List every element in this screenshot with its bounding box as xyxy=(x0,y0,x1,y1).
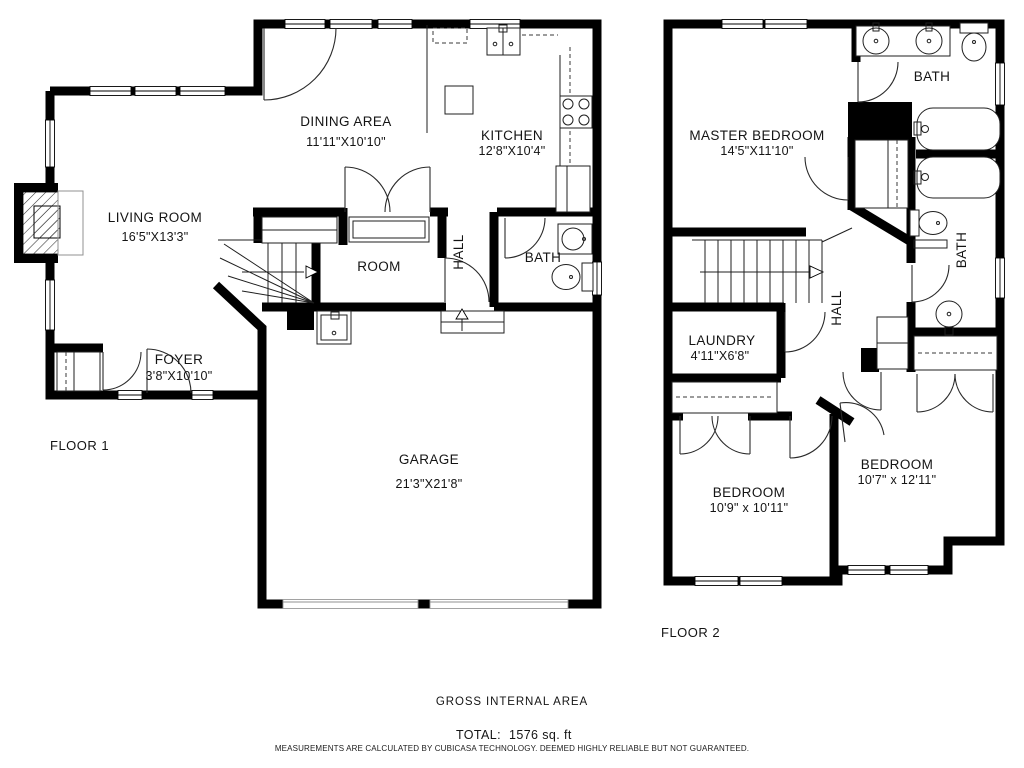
window xyxy=(740,577,782,586)
diagonal-wall xyxy=(850,205,913,243)
stove xyxy=(560,96,592,128)
window xyxy=(378,20,412,29)
floorplan-page: LIVING ROOM 16'5"X13'3" DINING AREA 11'1… xyxy=(0,0,1024,768)
stair-railing xyxy=(822,228,852,242)
window-sidelight xyxy=(192,391,213,400)
window xyxy=(46,120,55,167)
kitchen-sink xyxy=(487,25,520,55)
hall-closet xyxy=(877,317,908,369)
floor1-plan: LIVING ROOM 16'5"X13'3" DINING AREA 11'1… xyxy=(14,20,602,609)
bedroom-right-closet xyxy=(914,336,997,370)
window xyxy=(90,87,131,96)
room-label-dining: DINING AREA xyxy=(300,114,391,129)
entry-steps xyxy=(441,309,504,333)
bedroom-left-door xyxy=(790,416,832,458)
bath-top-door xyxy=(858,62,898,102)
room-dims-laundry: 4'11"X6'8" xyxy=(691,349,750,363)
shelf xyxy=(914,240,947,248)
master-door xyxy=(805,157,848,200)
window xyxy=(180,87,225,96)
window xyxy=(46,280,55,330)
window xyxy=(765,20,807,29)
foyer-closet xyxy=(57,352,100,391)
total-label: TOTAL: xyxy=(456,728,501,742)
entry-door xyxy=(264,28,336,100)
sink xyxy=(558,224,592,254)
room-label-bedroom-right: BEDROOM xyxy=(861,457,934,472)
room-label-hall2: HALL xyxy=(829,290,844,325)
room-label-bath-top: BATH xyxy=(914,69,951,84)
toilet xyxy=(552,263,593,291)
room-label-laundry: LAUNDRY xyxy=(688,333,755,348)
window xyxy=(890,566,928,575)
window xyxy=(695,577,738,586)
garage-pier xyxy=(287,311,314,330)
dishwasher xyxy=(445,86,473,114)
refrigerator xyxy=(556,166,590,212)
room-label-foyer: FOYER xyxy=(155,352,204,367)
window xyxy=(285,20,325,29)
window xyxy=(593,262,602,295)
floor2-title: FLOOR 2 xyxy=(661,625,720,640)
room-label-bath-side: BATH xyxy=(954,232,969,269)
room-label-living: LIVING ROOM xyxy=(108,210,202,225)
bedroom-left-closet-doors xyxy=(680,416,750,454)
room-label-garage: GARAGE xyxy=(399,452,459,467)
toilet xyxy=(960,23,988,61)
room-label-hall1: HALL xyxy=(451,234,466,269)
window xyxy=(996,63,1005,105)
kitchen-fixtures xyxy=(427,25,592,212)
laundry-closet xyxy=(672,382,777,413)
utility-sink xyxy=(317,311,351,344)
room-dims-living: 16'5"X13'3" xyxy=(122,230,189,244)
staircase-floor2 xyxy=(692,228,852,303)
window-sidelight xyxy=(118,391,142,400)
floorplan-drawing: LIVING ROOM 16'5"X13'3" DINING AREA 11'1… xyxy=(0,0,1024,768)
window xyxy=(722,20,763,29)
bathtub xyxy=(914,157,1000,198)
bedroom-right-closet-doors xyxy=(917,374,993,412)
room-label-bedroom-left: BEDROOM xyxy=(713,485,786,500)
room-label-master: MASTER BEDROOM xyxy=(689,128,824,143)
gross-internal-area-title: GROSS INTERNAL AREA xyxy=(436,696,588,708)
bath-side-door xyxy=(912,265,949,302)
room-dims-bedroom-right: 10'7" x 12'11" xyxy=(858,473,937,487)
window xyxy=(848,566,885,575)
window xyxy=(135,87,176,96)
total-value: 1576 sq. ft xyxy=(509,728,572,742)
room-dims-garage: 21'3"X21'8" xyxy=(396,477,463,491)
room-dims-foyer: 3'8"X10'10" xyxy=(146,369,213,383)
window xyxy=(996,258,1005,298)
hall-closet-door xyxy=(843,372,881,410)
french-doors xyxy=(345,167,430,212)
room-dims-master: 14'5"X11'10" xyxy=(720,144,793,158)
upper-cabinet xyxy=(433,28,467,43)
room-dims-kitchen: 12'8"X10'4" xyxy=(479,144,546,158)
fireplace xyxy=(14,183,83,263)
disclaimer-text: MEASUREMENTS ARE CALCULATED BY CUBICASA … xyxy=(275,744,749,753)
room-label-bath1: BATH xyxy=(525,250,562,265)
closet-wall-stub xyxy=(861,348,879,372)
room-dims-dining: 11'11"X10'10" xyxy=(306,135,386,149)
room-label-room: ROOM xyxy=(357,259,401,274)
room-dims-bedroom-left: 10'9" x 10'11" xyxy=(710,501,789,515)
window xyxy=(470,20,520,29)
floor2-plan: MASTER BEDROOM 14'5"X11'10" BATH BATH HA… xyxy=(661,20,1005,641)
stairs-up-arrow xyxy=(810,266,823,278)
hearth xyxy=(58,191,83,255)
laundry-door xyxy=(785,312,825,352)
toilet xyxy=(910,210,947,236)
closet-door xyxy=(103,352,141,390)
room-label-kitchen: KITCHEN xyxy=(481,128,543,143)
staircase-floor1 xyxy=(218,240,318,303)
master-closet xyxy=(855,140,908,208)
bathtub xyxy=(914,108,1000,150)
footer: GROSS INTERNAL AREA TOTAL: 1576 sq. ft M… xyxy=(275,696,749,753)
window xyxy=(330,20,372,29)
floor1-title: FLOOR 1 xyxy=(50,438,109,453)
